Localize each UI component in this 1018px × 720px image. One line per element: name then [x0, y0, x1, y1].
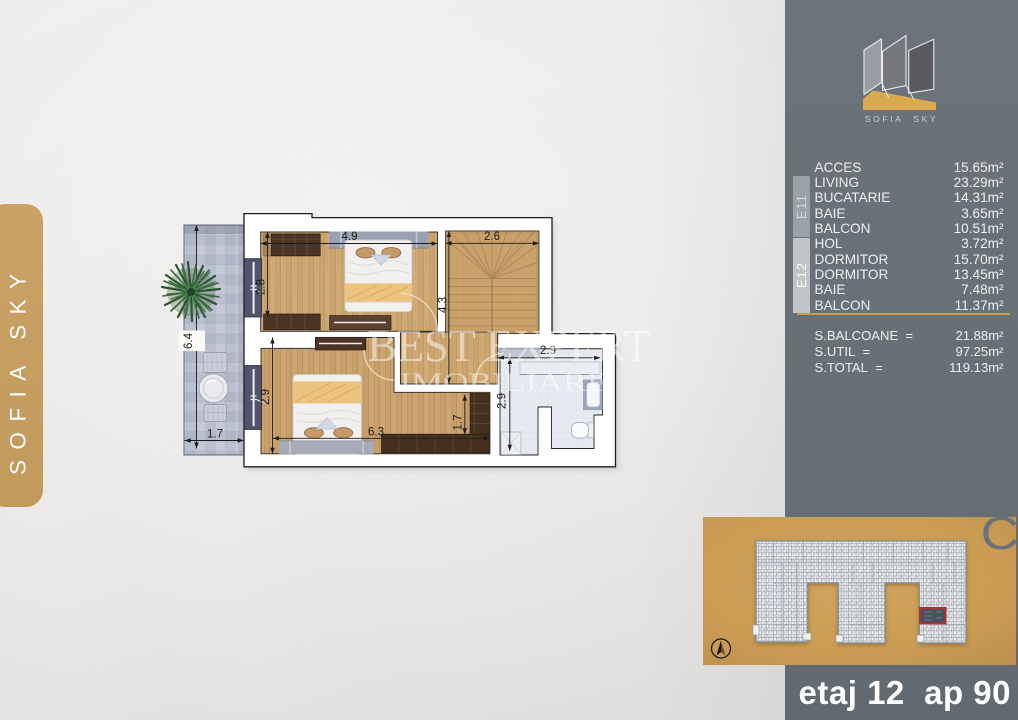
svg-text:1.7: 1.7: [453, 415, 465, 431]
svg-text:4.9: 4.9: [342, 231, 358, 243]
svg-text:IMOBILIARE: IMOBILIARE: [400, 368, 609, 397]
svg-text:2.9: 2.9: [260, 389, 272, 405]
svg-text:6.4: 6.4: [183, 332, 195, 349]
svg-text:1.7: 1.7: [207, 429, 223, 441]
svg-text:BEST EXPERT: BEST EXPERT: [368, 321, 651, 371]
svg-text:2.8: 2.8: [256, 279, 268, 295]
svg-text:2.6: 2.6: [484, 231, 500, 243]
svg-text:6.3: 6.3: [368, 427, 384, 439]
svg-text:SOFIA SKY: SOFIA SKY: [6, 274, 31, 475]
svg-text:4.3: 4.3: [438, 297, 450, 313]
